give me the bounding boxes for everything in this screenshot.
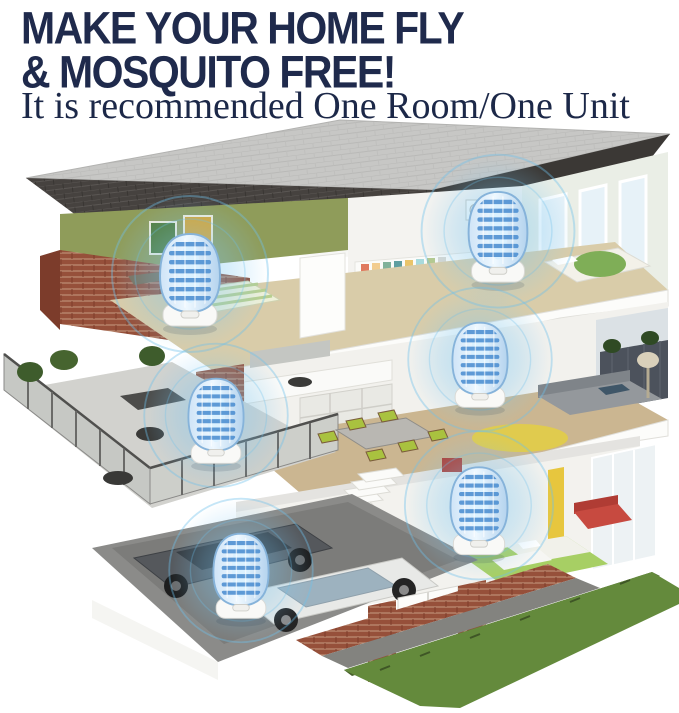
product-infographic: MAKE YOUR HOME FLY & MOSQUITO FREE! It i… xyxy=(0,0,679,713)
unit-garage xyxy=(169,499,313,643)
unit-living-room xyxy=(408,288,552,432)
headline-line-2: & MOSQUITO FREE! xyxy=(21,50,679,94)
header: MAKE YOUR HOME FLY & MOSQUITO FREE! It i… xyxy=(21,6,679,126)
headline-line-1: MAKE YOUR HOME FLY xyxy=(21,6,679,50)
brick-wall-side xyxy=(40,250,60,330)
hall-wall xyxy=(300,253,345,338)
unit-kitchen xyxy=(144,344,288,488)
unit-top-left-bedroom xyxy=(112,196,268,352)
headline: MAKE YOUR HOME FLY & MOSQUITO FREE! xyxy=(21,6,679,94)
unit-ground-bedroom xyxy=(405,431,553,579)
unit-top-right-bedroom xyxy=(422,155,575,308)
